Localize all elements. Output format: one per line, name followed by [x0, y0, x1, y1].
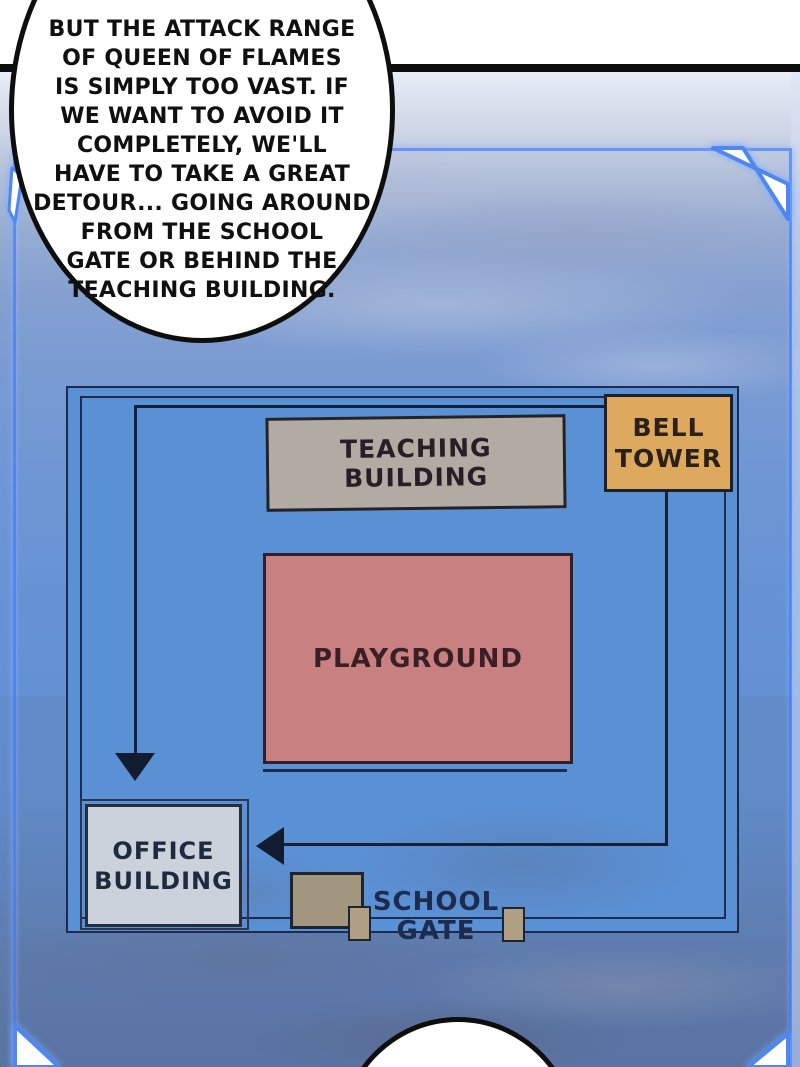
comic-page: TEACHING BUILDING BELL TOWER PLAYGROUND … [0, 0, 800, 1067]
speech-bubble: BUT THE ATTACK RANGE OF QUEEN OF FLAMES … [9, 0, 395, 343]
corner-decoration-bottom-left [6, 1012, 76, 1067]
corner-decoration-top-right [700, 140, 795, 230]
speech-bubble-text: BUT THE ATTACK RANGE OF QUEEN OF FLAMES … [14, 15, 390, 305]
corner-decoration-bottom-right [740, 1022, 800, 1067]
